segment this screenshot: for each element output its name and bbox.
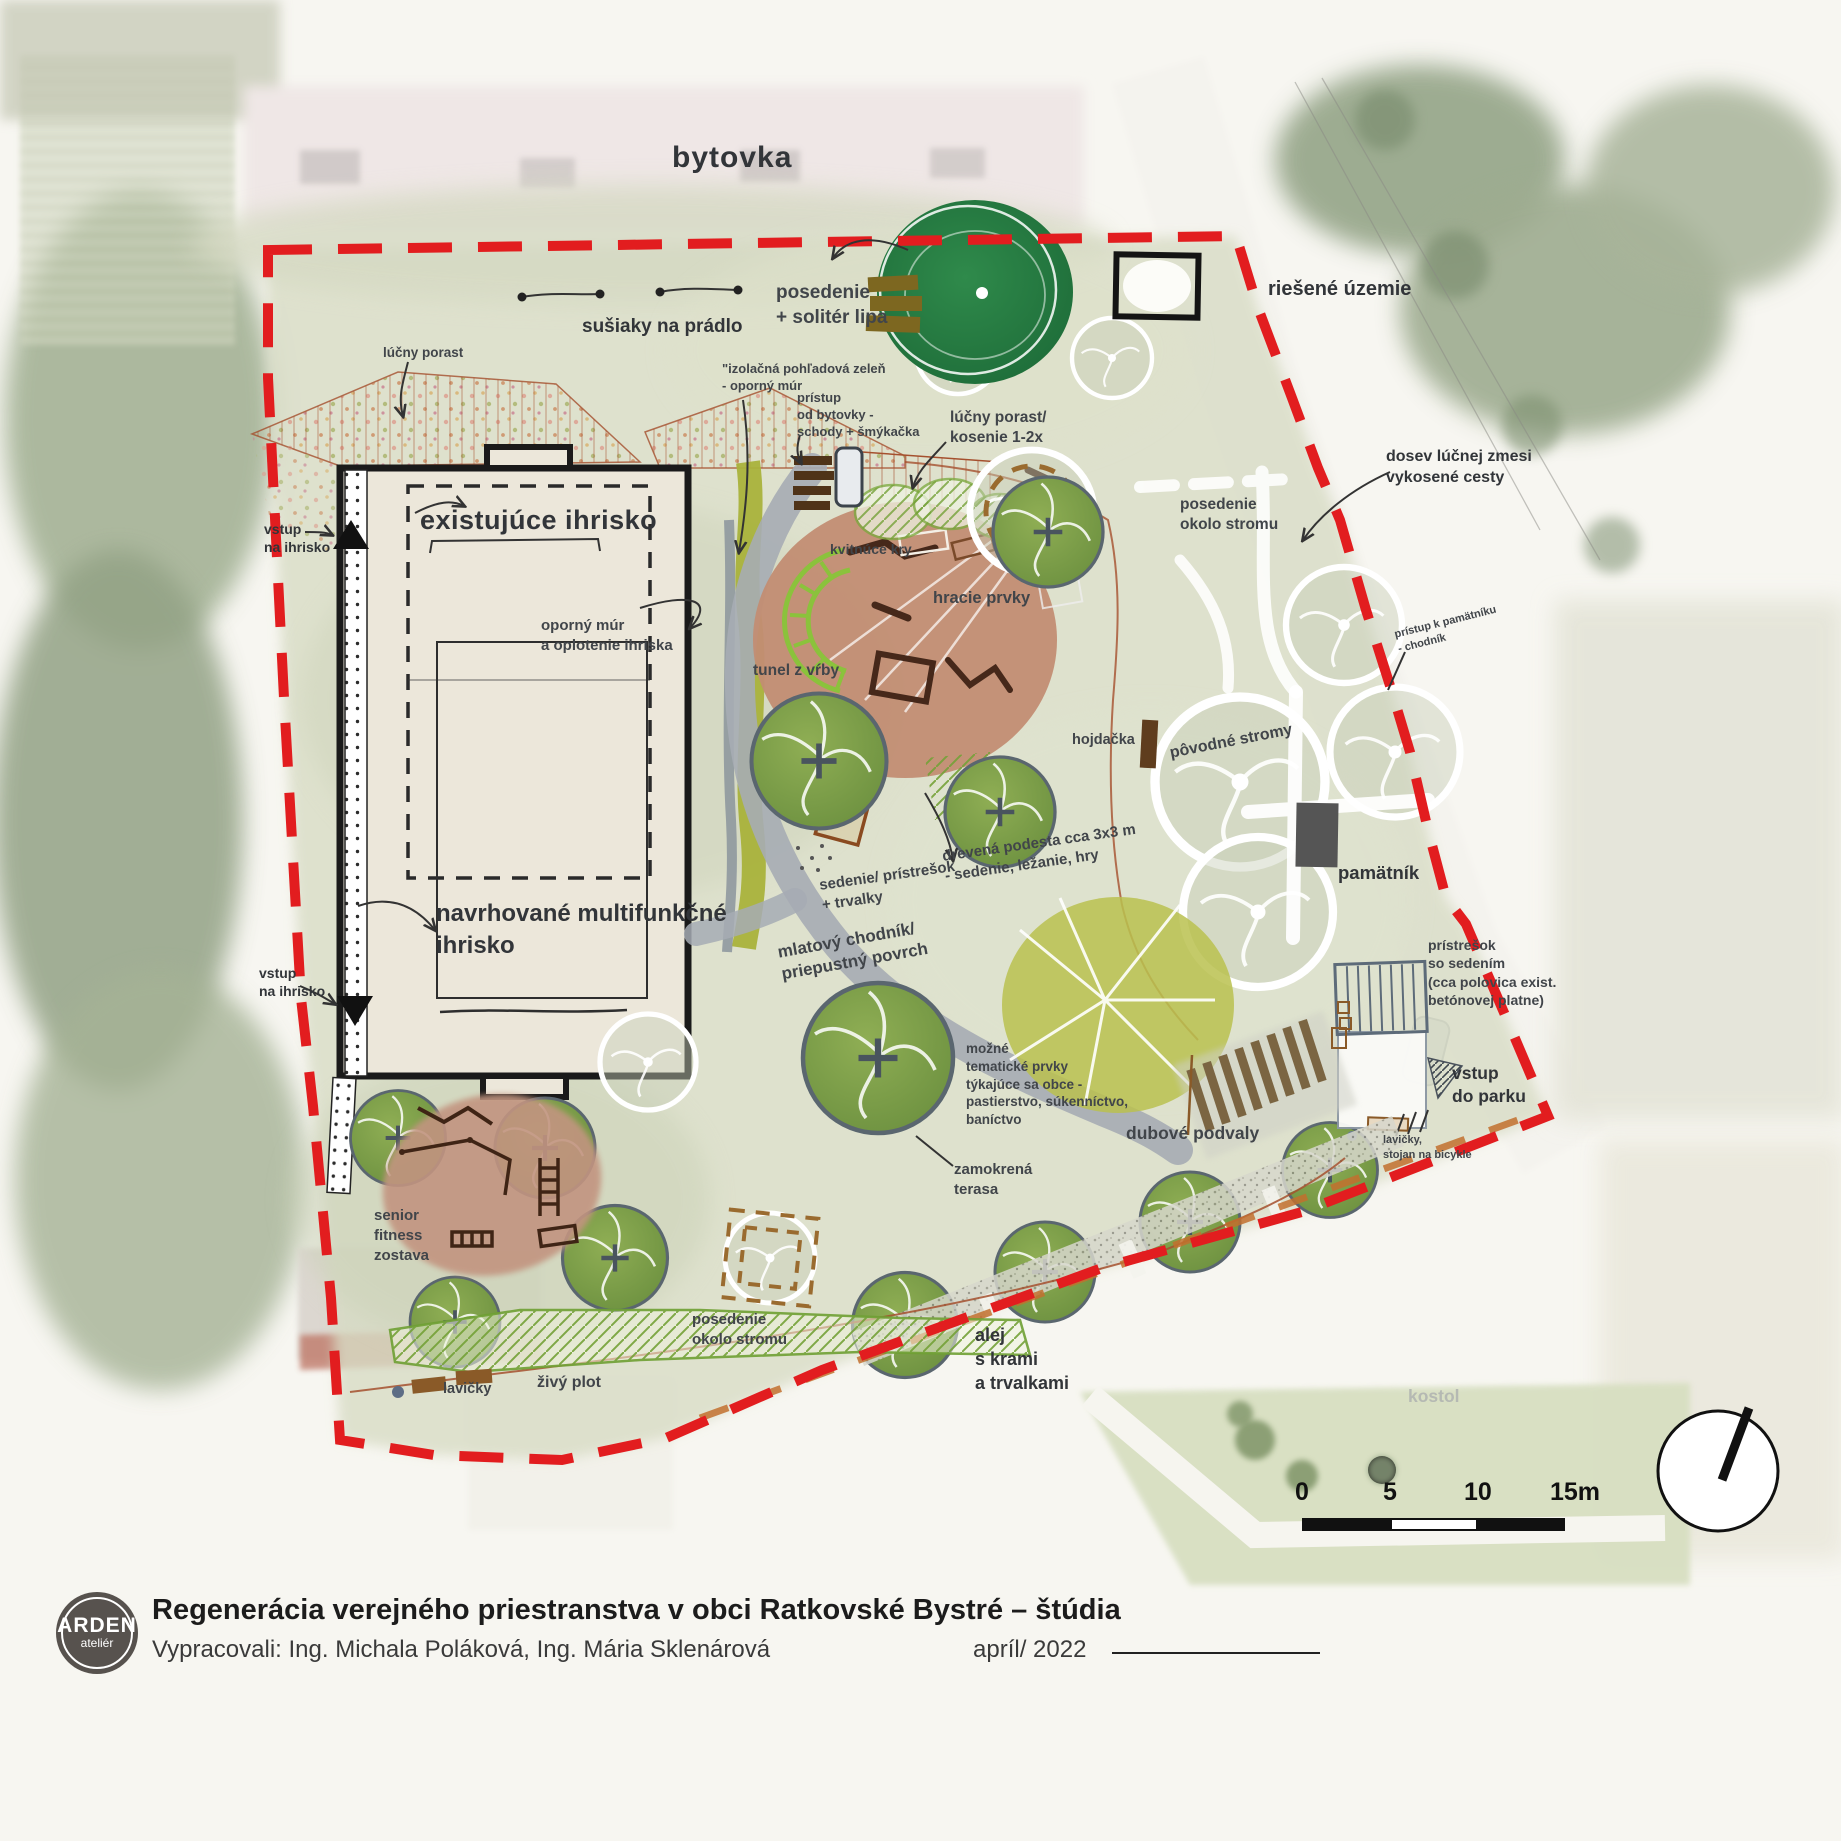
scale-0: 0 — [1295, 1478, 1309, 1507]
arden-atelier-logo: ARDEN ateliér — [56, 1592, 138, 1674]
project-title: Regenerácia verejného priestranstva v ob… — [152, 1594, 1121, 1627]
scale-10: 10 — [1464, 1478, 1492, 1507]
solitary-lime-tree — [877, 200, 1073, 384]
project-date: apríl/ 2022 — [973, 1636, 1086, 1664]
slide — [836, 448, 862, 506]
scale-bar: 0 5 10 15m — [1288, 1478, 1648, 1542]
benches-under-lime — [866, 275, 922, 333]
scale-15: 15m — [1550, 1478, 1600, 1507]
title-block: ARDEN ateliér Regenerácia verejného prie… — [0, 1588, 1841, 1708]
dotted-walkway — [345, 470, 367, 1076]
logo-ring — [61, 1597, 133, 1669]
site-plan-sheet: bytovka posedenie + solitér lipa sušiaky… — [0, 0, 1841, 1841]
bench — [456, 1369, 493, 1385]
scale-5: 5 — [1383, 1478, 1397, 1507]
project-authors: Vypracovali: Ing. Michala Poláková, Ing.… — [152, 1636, 770, 1664]
north-compass-icon — [1658, 1408, 1778, 1531]
site-plan-graphic — [0, 0, 1841, 1841]
swing — [1140, 720, 1158, 769]
footer-rule — [1112, 1652, 1320, 1654]
